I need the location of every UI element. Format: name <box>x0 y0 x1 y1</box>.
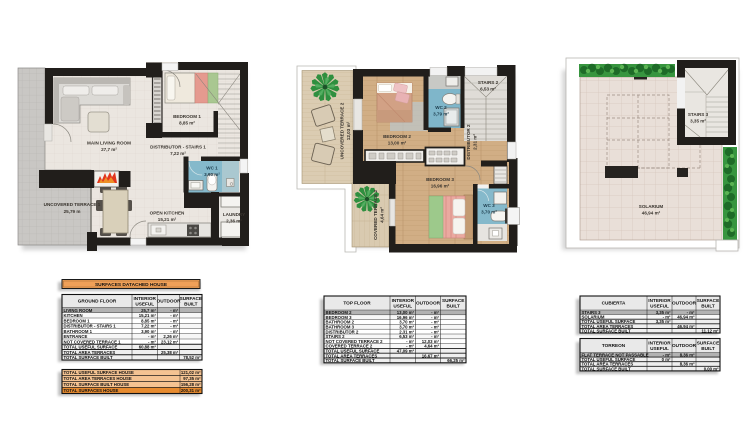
svg-text:4,64 m²: 4,64 m² <box>424 344 439 349</box>
svg-text:BEDROOM 1: BEDROOM 1 <box>173 114 201 119</box>
svg-text:2,26 m²: 2,26 m² <box>163 334 178 339</box>
svg-text:121,02 m²: 121,02 m² <box>181 370 201 375</box>
svg-text:OUTDOOR: OUTDOOR <box>672 343 697 348</box>
svg-text:SURFACES DATACHED HOUSE: SURFACES DATACHED HOUSE <box>95 282 168 288</box>
svg-text:46,94 m²: 46,94 m² <box>642 211 661 216</box>
svg-text:SURFACE: SURFACE <box>442 298 464 303</box>
svg-text:7,22 m²: 7,22 m² <box>141 324 156 329</box>
svg-text:TOTAL SURFACE BUILT: TOTAL SURFACE BUILT <box>326 358 375 363</box>
svg-text:SOLARIUM: SOLARIUM <box>639 204 664 209</box>
svg-text:UNCOVERED TERRACE 1: UNCOVERED TERRACE 1 <box>44 202 101 207</box>
svg-text:- m²: - m² <box>148 334 156 339</box>
svg-text:TOTAL SURFACE BUILT: TOTAL SURFACE BUILT <box>582 328 631 333</box>
svg-text:BUILT: BUILT <box>184 301 198 306</box>
svg-text:INTERIOR: INTERIOR <box>648 298 671 303</box>
svg-text:3,90 m²: 3,90 m² <box>204 172 220 177</box>
svg-text:TOTAL SURFACE BUILT: TOTAL SURFACE BUILT <box>582 366 631 371</box>
svg-text:USEFUL: USEFUL <box>650 303 669 308</box>
svg-text:OUTDOOR: OUTDOOR <box>416 301 441 306</box>
svg-text:TOTAL USEFUL SURFACE: TOTAL USEFUL SURFACE <box>64 345 118 350</box>
svg-text:60,88 m²: 60,88 m² <box>139 345 157 350</box>
svg-text:2,31 m²: 2,31 m² <box>473 134 478 150</box>
svg-text:8,85 m²: 8,85 m² <box>179 121 195 126</box>
svg-text:SURFACE: SURFACE <box>697 340 719 345</box>
svg-text:TOTAL SURFACES HOUSE: TOTAL SURFACES HOUSE <box>64 388 119 393</box>
svg-text:3,90 m²: 3,90 m² <box>141 329 156 334</box>
svg-text:BEDROOM 1: BEDROOM 1 <box>64 318 91 323</box>
svg-text:- m²: - m² <box>170 329 178 334</box>
svg-text:25,7 m²: 25,7 m² <box>141 308 156 313</box>
svg-text:OPEN KITCHEN: OPEN KITCHEN <box>150 211 185 216</box>
svg-text:6,53 m²: 6,53 m² <box>480 87 496 92</box>
svg-text:3,35 m²: 3,35 m² <box>690 119 706 124</box>
svg-text:KITCHEN: KITCHEN <box>64 313 83 318</box>
svg-text:2,36 m²: 2,36 m² <box>226 219 242 224</box>
svg-text:156,28 m²: 156,28 m² <box>181 382 201 387</box>
svg-text:16,67 m²: 16,67 m² <box>422 353 440 358</box>
svg-text:15,21 m²: 15,21 m² <box>158 217 177 222</box>
svg-text:78,52 m²: 78,52 m² <box>183 355 201 360</box>
svg-text:- m²: - m² <box>170 308 178 313</box>
svg-text:TOTAL AREA TERRACES: TOTAL AREA TERRACES <box>64 350 116 355</box>
svg-text:SURFACE: SURFACE <box>180 296 202 301</box>
svg-text:16,96 m²: 16,96 m² <box>431 184 450 189</box>
svg-text:7,22 m²: 7,22 m² <box>170 151 186 156</box>
svg-text:INTERIOR: INTERIOR <box>648 340 671 345</box>
svg-text:COVERED TERRACE 2: COVERED TERRACE 2 <box>373 190 378 240</box>
svg-text:- m²: - m² <box>170 313 178 318</box>
svg-text:BUILT: BUILT <box>701 346 715 351</box>
svg-text:BEDROOM 2: BEDROOM 2 <box>383 134 411 139</box>
svg-text:BUILT: BUILT <box>446 303 460 308</box>
svg-text:27,7 m²: 27,7 m² <box>101 147 117 152</box>
svg-text:TOTAL USEFUL SURFACE HOUSE: TOTAL USEFUL SURFACE HOUSE <box>64 370 134 375</box>
svg-text:BEDROOM 3: BEDROOM 3 <box>426 177 454 182</box>
svg-text:25,79 m: 25,79 m <box>64 209 81 214</box>
svg-text:0,00 m²: 0,00 m² <box>704 366 719 371</box>
svg-text:TOP FLOOR: TOP FLOOR <box>343 301 371 306</box>
svg-text:25,38 m²: 25,38 m² <box>161 350 179 355</box>
svg-text:NOT COVERED TERRACE 1: NOT COVERED TERRACE 1 <box>64 339 122 344</box>
svg-text:WC 1: WC 1 <box>206 166 218 171</box>
svg-text:TOTAL SURFACE BUILT HOUSE: TOTAL SURFACE BUILT HOUSE <box>64 382 130 387</box>
svg-text:8,85 m²: 8,85 m² <box>141 318 156 323</box>
svg-text:3,70 m²: 3,70 m² <box>481 210 497 215</box>
svg-text:46,94 m²: 46,94 m² <box>677 324 695 329</box>
svg-text:ENTRANCE: ENTRANCE <box>64 334 88 339</box>
svg-text:23,12 m²: 23,12 m² <box>161 339 179 344</box>
svg-text:USEFUL: USEFUL <box>393 303 412 308</box>
svg-text:4,64 m²: 4,64 m² <box>380 207 385 223</box>
svg-text:- m²: - m² <box>148 339 156 344</box>
svg-text:97,35 m²: 97,35 m² <box>183 376 201 381</box>
svg-text:LIVING ROOM: LIVING ROOM <box>64 308 93 313</box>
svg-text:STAIRS 3: STAIRS 3 <box>688 112 709 117</box>
svg-text:USEFUL: USEFUL <box>650 346 669 351</box>
svg-text:15,21 m²: 15,21 m² <box>139 313 157 318</box>
svg-text:200,31 m²: 200,31 m² <box>181 388 201 393</box>
svg-text:OUTDOOR: OUTDOOR <box>157 299 182 304</box>
svg-text:CUBIERTA: CUBIERTA <box>602 301 626 306</box>
svg-text:UNCOVERED TERRACE 2: UNCOVERED TERRACE 2 <box>340 102 345 159</box>
svg-text:11,12 m²: 11,12 m² <box>702 328 720 333</box>
svg-text:- m²: - m² <box>170 324 178 329</box>
svg-text:47,09 m²: 47,09 m² <box>397 349 415 354</box>
svg-text:BATHROOM 1: BATHROOM 1 <box>64 329 93 334</box>
svg-text:46,94 m²: 46,94 m² <box>677 315 695 320</box>
svg-text:DISTRIBUTOR - STAIRS 1: DISTRIBUTOR - STAIRS 1 <box>150 145 206 150</box>
svg-text:LAUNDRY: LAUNDRY <box>223 212 245 217</box>
svg-text:INTERIOR: INTERIOR <box>133 296 156 301</box>
svg-text:WC 2: WC 2 <box>435 105 447 110</box>
svg-text:USEFUL: USEFUL <box>135 301 154 306</box>
svg-text:8,36 m²: 8,36 m² <box>680 353 695 358</box>
svg-text:12,03 m²: 12,03 m² <box>346 121 351 140</box>
svg-text:OUTDOOR: OUTDOOR <box>672 301 697 306</box>
svg-text:TOTAL AREA TERRACES HOUSE: TOTAL AREA TERRACES HOUSE <box>64 376 132 381</box>
svg-text:WC 3: WC 3 <box>483 203 495 208</box>
svg-text:SURFACE: SURFACE <box>697 298 719 303</box>
svg-text:8,36 m²: 8,36 m² <box>680 362 695 367</box>
svg-text:DISTRIBUTOR 2: DISTRIBUTOR 2 <box>466 124 471 160</box>
svg-text:GROUND FLOOR: GROUND FLOOR <box>78 299 117 304</box>
svg-text:0 m²: 0 m² <box>662 357 671 362</box>
svg-text:MAIN LIVING ROOM: MAIN LIVING ROOM <box>87 141 131 146</box>
svg-text:3,35 m²: 3,35 m² <box>656 319 671 324</box>
svg-text:3,79 m²: 3,79 m² <box>433 112 449 117</box>
svg-text:13,00 m²: 13,00 m² <box>388 141 407 146</box>
svg-text:- m²: - m² <box>170 318 178 323</box>
svg-text:TORREON: TORREON <box>602 343 626 348</box>
svg-text:INTERIOR: INTERIOR <box>392 298 415 303</box>
svg-text:STAIRS 2: STAIRS 2 <box>478 80 499 85</box>
svg-text:BUILT: BUILT <box>701 303 715 308</box>
svg-text:DISTRIBUTOR - STAIRS 1: DISTRIBUTOR - STAIRS 1 <box>64 324 117 329</box>
svg-text:TOTAL SURFACE BUILT: TOTAL SURFACE BUILT <box>64 355 113 360</box>
svg-text:66,25 m²: 66,25 m² <box>447 358 465 363</box>
